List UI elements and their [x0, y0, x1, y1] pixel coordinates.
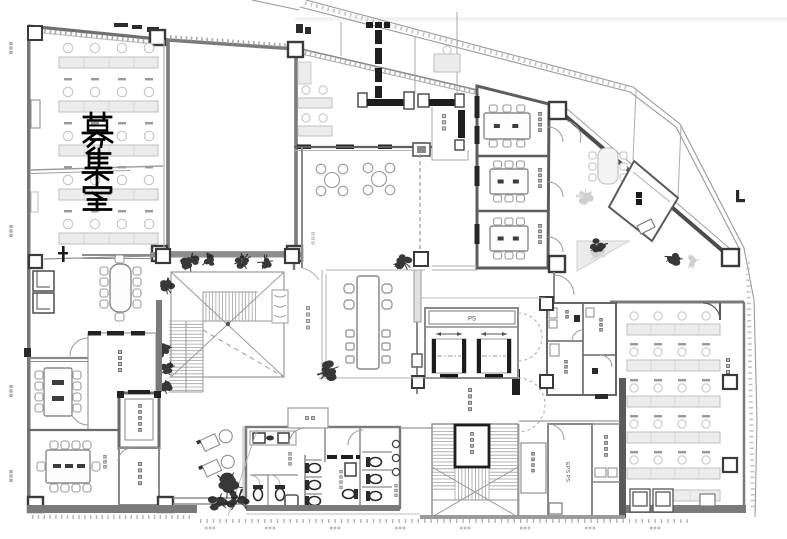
svg-text:EPS PS: EPS PS	[564, 462, 570, 482]
svg-text:PS: PS	[468, 317, 476, 323]
